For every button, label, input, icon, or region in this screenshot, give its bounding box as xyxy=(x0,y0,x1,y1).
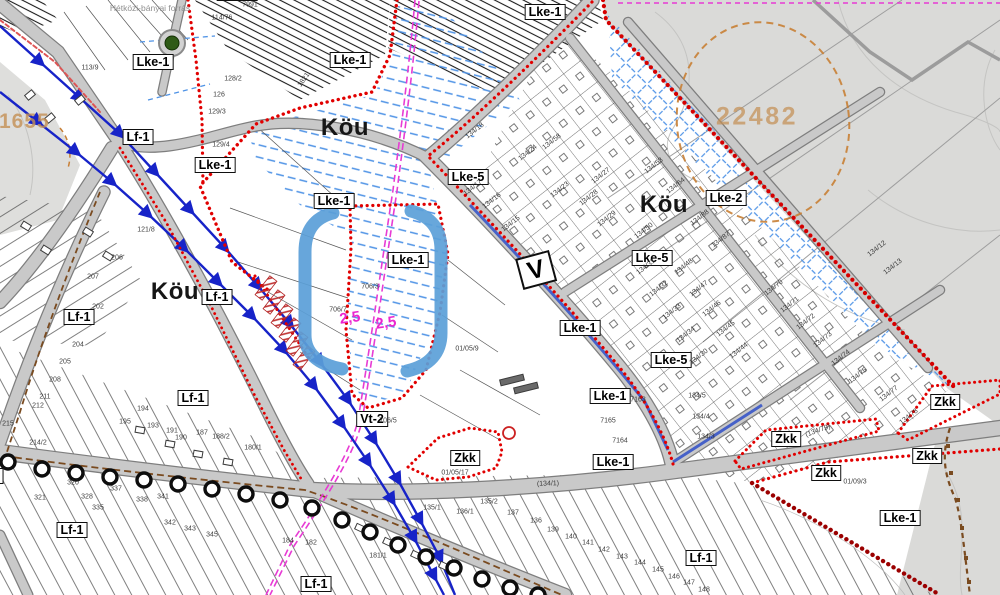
monument-marker xyxy=(503,427,515,439)
map-graphics xyxy=(0,0,1000,595)
spring-marker xyxy=(159,30,185,56)
zoning-map-canvas[interactable]: Lke-1Lf-1Lke-1Lke-1Lke-1Lke-1Lke-5Lke-1L… xyxy=(0,0,1000,595)
